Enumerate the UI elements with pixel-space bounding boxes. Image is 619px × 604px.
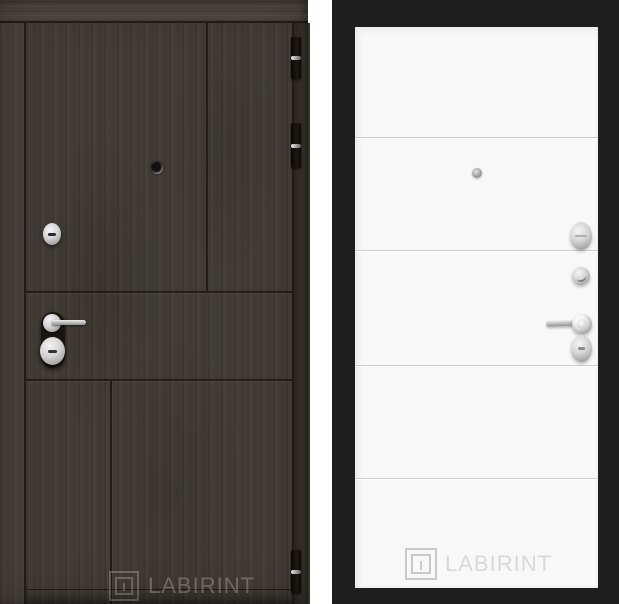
thumb-turn-mark — [575, 271, 588, 284]
groove-line — [355, 478, 598, 479]
keyhole-escutcheon — [571, 335, 592, 362]
keyhole-slot — [48, 350, 57, 353]
door-image-dark-exterior[interactable]: LABIRINT — [0, 0, 308, 604]
groove-line — [355, 250, 598, 251]
panel-seam-horizontal — [26, 379, 292, 381]
product-image-canvas: LABIRINT — [0, 0, 619, 604]
labirint-logo-icon — [405, 548, 437, 580]
labirint-logo-text: LABIRINT — [445, 553, 552, 575]
panel-seam-vertical — [206, 23, 208, 291]
door-frame-left-stile — [0, 23, 26, 604]
door-leaf-white: LABIRINT — [355, 27, 598, 588]
groove-line — [355, 137, 598, 138]
hinge-top — [291, 37, 301, 79]
door-frame-right-jamb — [292, 23, 310, 604]
peephole-icon — [472, 168, 482, 178]
keyhole-slot — [48, 233, 56, 236]
hinge-upper-middle — [291, 123, 301, 168]
hinge-pin — [291, 570, 301, 574]
cylinder-escutcheon — [40, 337, 65, 365]
viewer-cover — [570, 222, 592, 250]
lever-handle — [52, 320, 86, 325]
thumb-turn-lock — [572, 267, 590, 285]
door-leaf-dark: LABIRINT — [26, 23, 292, 604]
labirint-watermark: LABIRINT — [405, 548, 552, 580]
hinge-pin — [291, 144, 301, 148]
hinge-pin — [291, 56, 301, 60]
peephole-icon — [151, 162, 163, 174]
labirint-logo-icon-core — [123, 583, 125, 591]
labirint-logo-icon — [109, 571, 139, 601]
handle-rose-hub — [577, 319, 587, 329]
handle-rose — [572, 314, 592, 334]
panel-seam-horizontal — [26, 291, 292, 293]
labirint-logo-text: LABIRINT — [148, 575, 255, 597]
viewer-cover-line — [575, 235, 587, 237]
groove-line — [355, 365, 598, 366]
hinge-bottom — [291, 550, 301, 593]
door-frame-top-rail — [0, 0, 308, 23]
labirint-watermark: LABIRINT — [109, 571, 255, 601]
labirint-logo-icon-core — [420, 561, 422, 570]
keyhole-escutcheon — [43, 223, 61, 245]
keyhole-slot — [578, 347, 585, 350]
door-image-white-interior[interactable]: LABIRINT — [332, 0, 619, 604]
